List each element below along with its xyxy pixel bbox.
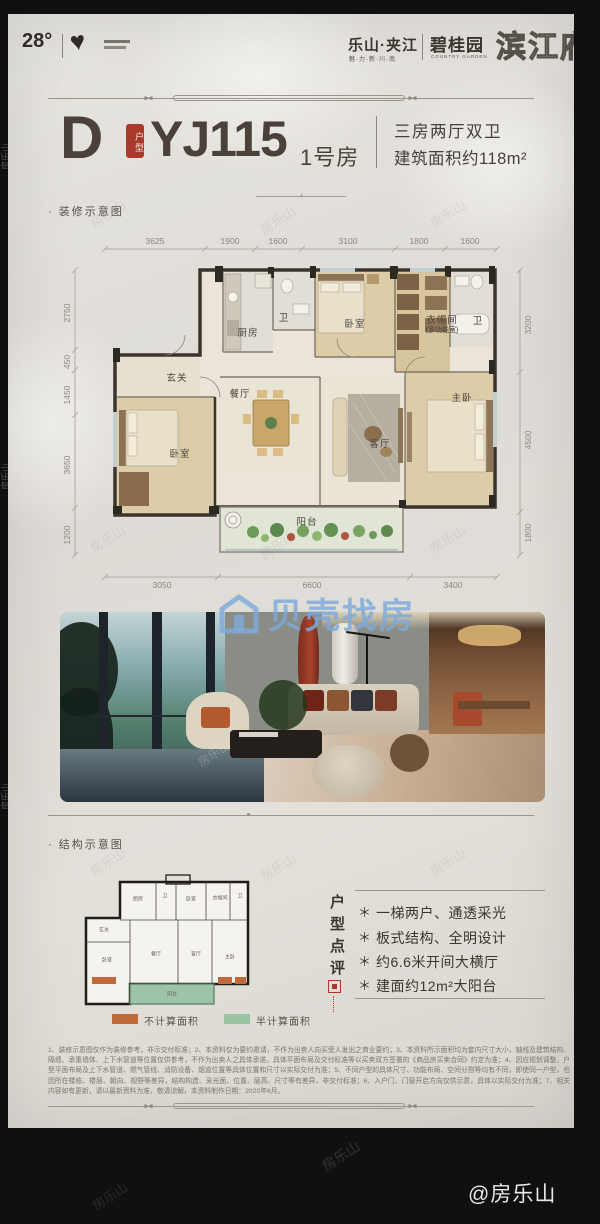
brochure-page: 28° ♥ 乐山·夹江 魅·力·新·川·南 碧桂园 COUNTRY GARDEN…: [8, 14, 574, 1128]
mini-room-label: 餐厅: [151, 951, 161, 958]
dim-left: 3650: [62, 456, 72, 475]
heart-logo-caption: [104, 46, 126, 49]
heart-logo-icon: ♥: [68, 25, 88, 58]
review-bullet: 建面约12m²大阳台: [376, 976, 497, 996]
dim-top: 3625: [146, 236, 165, 246]
divider-capsule: [173, 95, 405, 101]
divider-ornament-icon: ▸◂: [408, 93, 415, 104]
temperature-logo: 28°: [22, 30, 52, 53]
structure-plan-drawing: [78, 872, 278, 1022]
project-name: 滨江府: [496, 22, 574, 66]
divider-ornament-icon: ▸◂: [408, 1101, 415, 1112]
page-watermark: 房乐山: [426, 843, 469, 880]
room-label-bedroom-top: 卧室: [344, 316, 365, 330]
room-label-cloakroom-sub: (多功能室): [426, 325, 459, 335]
mini-room-label: 玄关: [99, 927, 109, 934]
photo-table-plant: [259, 680, 308, 729]
review-line-bottom: [355, 998, 545, 999]
review-title: 户型点评: [326, 894, 347, 982]
dim-top: 1900: [221, 236, 240, 246]
room-label-foyer: 玄关: [166, 370, 187, 384]
mini-room-label: 主卧: [225, 954, 235, 961]
room-label-bedroom-left: 卧室: [169, 446, 190, 460]
heart-logo-caption: [104, 40, 130, 43]
divider-ornament-icon: ▪▪: [247, 812, 250, 819]
photo-armchair-pillow: [201, 707, 230, 728]
legend-label: 半计算面积: [256, 1013, 311, 1028]
unit-spec-area: 建筑面积约118m²: [394, 145, 527, 169]
photo-coffee-table-books: [239, 732, 278, 738]
dim-bottom: 3050: [153, 580, 172, 590]
mini-room-label: 卫: [237, 893, 242, 900]
review-bullet-marker: ＊: [358, 902, 371, 921]
review-bullet: 约6.6米开间大横厅: [376, 952, 498, 972]
room-label-balcony: 阳台: [296, 514, 317, 528]
photo-stool: [390, 734, 429, 772]
mini-room-label: 衣帽间: [212, 895, 227, 902]
photo-sofa-pillow: [327, 690, 349, 711]
developer-brand-en: COUNTRY GARDEN: [431, 54, 488, 59]
legend-swatch-orange: [112, 1014, 138, 1024]
bottom-watermark: 房乐山: [318, 1136, 364, 1176]
room-label-living: 客厅: [369, 436, 390, 450]
beike-house-icon: [218, 593, 260, 635]
photo-sofa-pillow: [375, 690, 397, 711]
dim-right: 3200: [523, 316, 533, 335]
mini-ornament-icon: ▪: [300, 193, 301, 199]
unit-type-seal-text: 户型: [134, 132, 144, 154]
room-label-cloakroom: 衣帽间: [426, 312, 458, 326]
dim-left: 450: [62, 355, 72, 369]
room-label-bath2: 卫: [473, 313, 484, 327]
room-label-master: 主卧: [451, 390, 472, 404]
photo-dining-table: [458, 701, 531, 709]
floorplan-area: 3625 1900 1600 3100 1800 1600 2750 450 1…: [50, 225, 550, 595]
photo-sofa-pillow: [351, 690, 373, 711]
review-seal-inner: [332, 984, 337, 989]
unit-spec-rooms: 三房两厅双卫: [394, 118, 502, 142]
review-seal-tail: [333, 996, 334, 1012]
unit-model: YJ115: [150, 114, 287, 164]
project-location-slogan: 魅·力·新·川·南: [349, 54, 396, 63]
divider-ornament-icon: ▸◂: [144, 1101, 151, 1112]
structure-plan: 厨房 卫 卧室 衣帽间 卫 玄关 卧室 餐厅 客厅 主卧 阳台: [78, 872, 278, 1022]
mini-room-label: 客厅: [191, 951, 201, 958]
review-bullet-marker: ＊: [358, 975, 371, 994]
dim-top: 1600: [461, 236, 480, 246]
interior-photo: 房乐山: [60, 612, 545, 802]
unit-type-seal: 户型: [126, 124, 144, 158]
unit-type-letter: D: [60, 108, 103, 168]
mini-room-label: 阳台: [167, 991, 177, 998]
photo-frame: 房乐山 房乐山 房乐山 房乐山 房乐山 @房乐山 28° ♥ 乐山·夹江 魅·力…: [0, 0, 600, 1224]
dim-left: 1450: [62, 386, 72, 405]
header-divider: [422, 34, 423, 60]
mini-room-label: 卫: [162, 893, 167, 900]
header-divider: [62, 34, 63, 58]
divider-capsule: [173, 1103, 405, 1109]
credit-watermark: @房乐山: [468, 1178, 556, 1208]
dim-top: 3100: [339, 236, 358, 246]
legend-label: 不计算面积: [144, 1013, 199, 1028]
beike-watermark: 贝壳找房: [218, 588, 416, 639]
dim-right: 4500: [523, 431, 533, 450]
beike-watermark-text: 贝壳找房: [268, 588, 416, 639]
title-divider: [376, 116, 377, 168]
review-bullet: 一梯两户、通透采光: [376, 903, 507, 923]
review-bullet-marker: ＊: [358, 951, 371, 970]
dim-top: 1800: [410, 236, 429, 246]
photo-dining-chair-red: [453, 692, 482, 726]
disclaimer-text: 1、装修示意图仅作为装修参考，非示交付标准；2、本资料仅为要约邀请，不作为出卖人…: [48, 1046, 570, 1097]
photo-ottoman: [312, 745, 385, 798]
review-line-top: [355, 890, 545, 891]
developer-brand: 碧桂园: [430, 31, 484, 56]
mini-room-label: 卧室: [186, 896, 196, 903]
legend-swatch-green: [224, 1014, 250, 1024]
review-bullet-marker: ＊: [358, 927, 371, 946]
review-seal: [328, 980, 341, 993]
mini-room-label: 卧室: [102, 957, 112, 964]
review-bullet: 板式结构、全明设计: [376, 928, 507, 948]
unit-room-no: 1号房: [300, 140, 359, 172]
mini-room-label: 厨房: [133, 896, 143, 903]
dim-left: 1200: [62, 526, 72, 545]
project-location: 乐山·夹江: [348, 34, 418, 55]
dim-bottom: 3400: [444, 580, 463, 590]
floorplan-drawing: [50, 225, 550, 595]
room-label-bath1: 卫: [279, 310, 290, 324]
bottom-watermark: 房乐山: [88, 1177, 131, 1214]
room-label-kitchen: 厨房: [237, 325, 258, 339]
dim-right: 1800: [523, 524, 533, 543]
dim-top: 1600: [269, 236, 288, 246]
divider-line: [48, 815, 534, 816]
room-label-dining: 餐厅: [229, 386, 250, 400]
dim-left: 2750: [62, 304, 72, 323]
divider-ornament-icon: ▸◂: [144, 93, 151, 104]
